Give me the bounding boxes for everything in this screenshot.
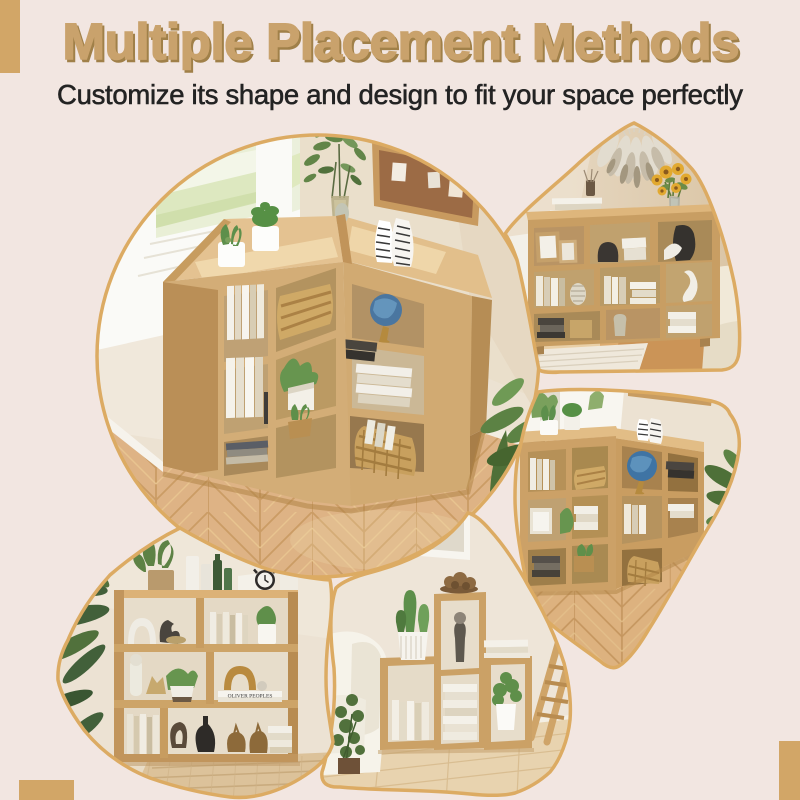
svg-text:Multiple Placement Methods: Multiple Placement Methods <box>63 13 740 70</box>
svg-text:Customize its shape and design: Customize its shape and design to fit yo… <box>57 79 743 110</box>
svg-text:OLIVER PEOPLES: OLIVER PEOPLES <box>228 694 273 700</box>
